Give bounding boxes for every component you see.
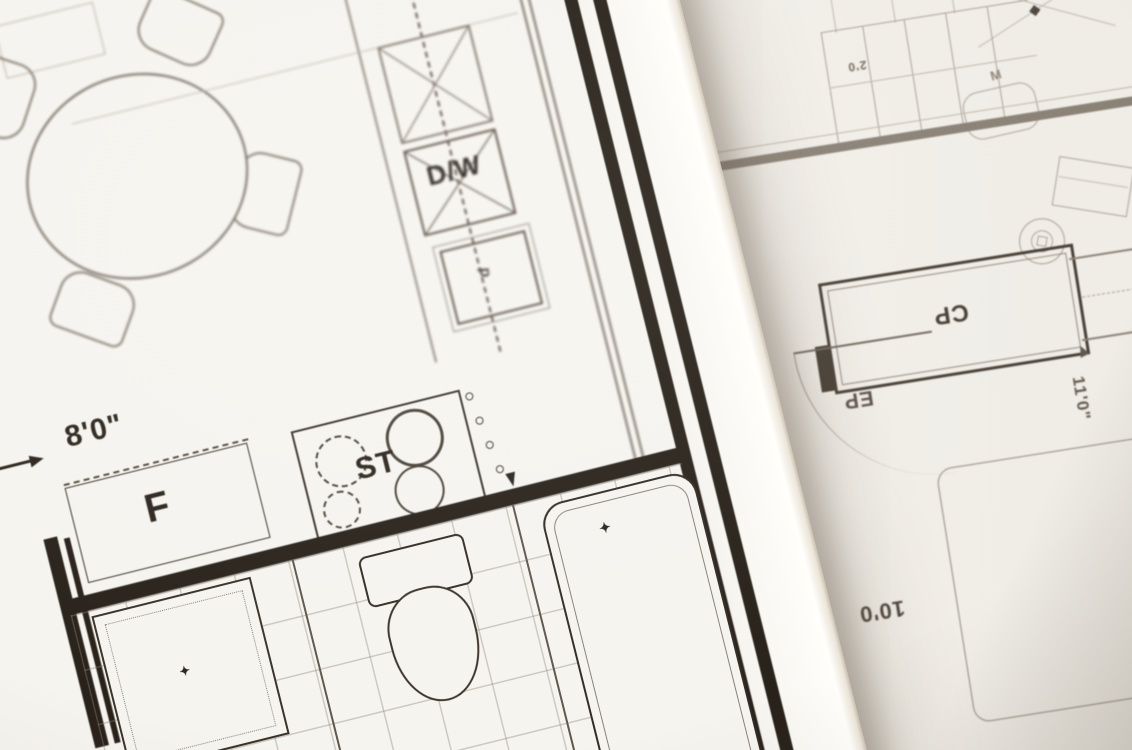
dimension-2ft: 2'0 [846, 58, 867, 75]
cp-label: CP [931, 297, 970, 330]
fixture-detail [1036, 236, 1047, 247]
grid-line [824, 0, 837, 33]
dimension-11ft: 11'0" [1068, 375, 1095, 422]
dimension-10ft: 10'0 [857, 594, 906, 627]
grid-line [882, 0, 896, 23]
floorplan-photo: d 8'0 M 2'0 [0, 0, 1132, 750]
closet-line [1082, 309, 1132, 341]
closet-rod-dashed-line [1082, 267, 1132, 297]
entry-door-arc [794, 332, 957, 495]
room-outline [935, 427, 1132, 723]
closet-line [1069, 228, 1132, 260]
